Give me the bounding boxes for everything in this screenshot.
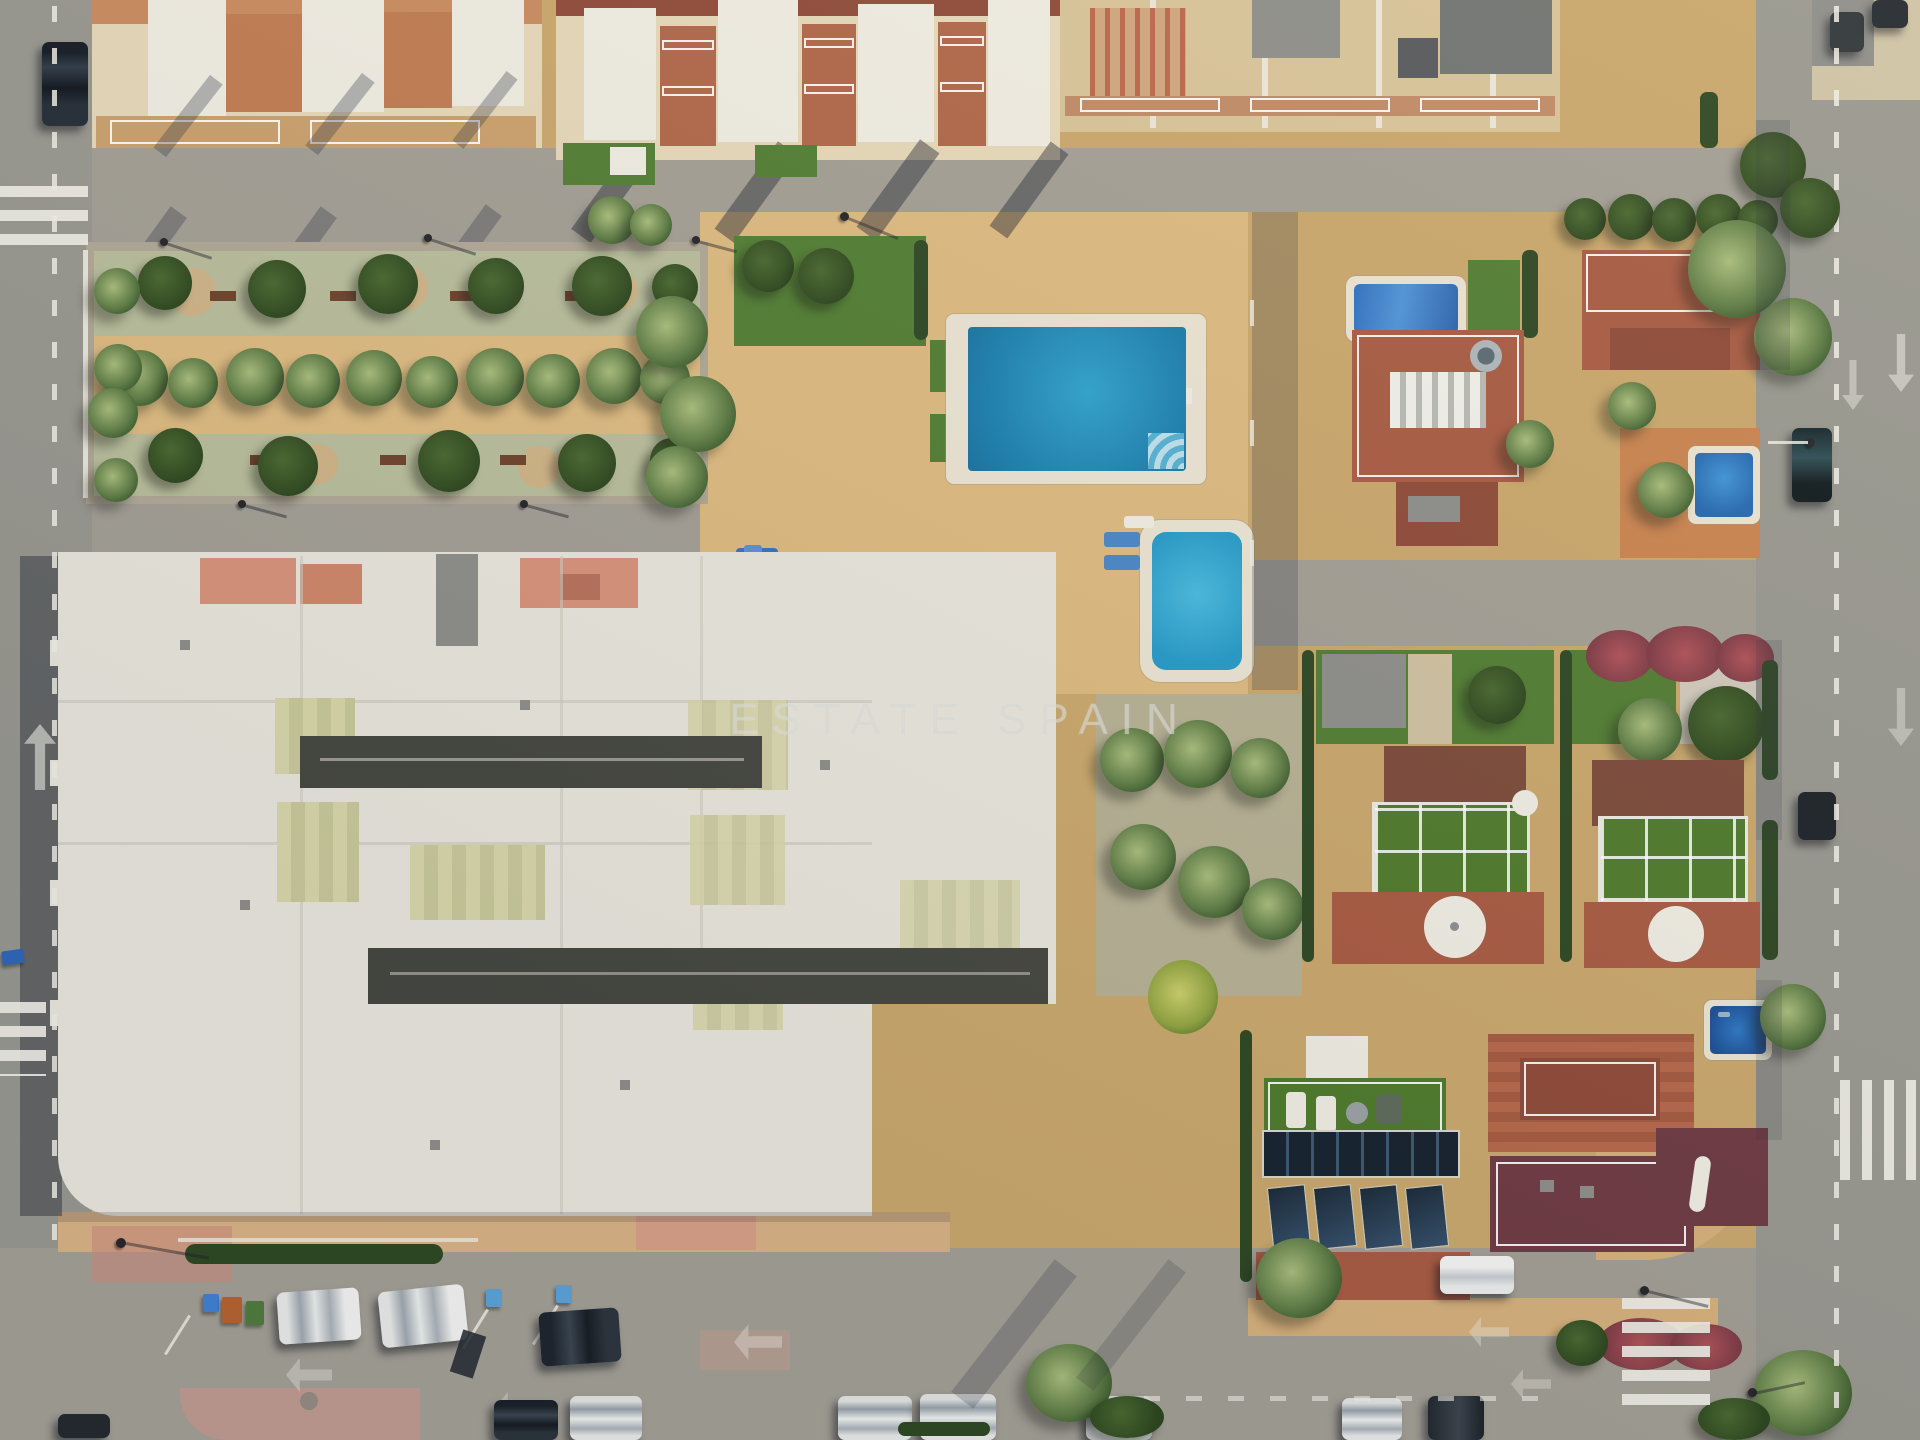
- watermark-text: ESTATE SPAIN: [720, 692, 1200, 748]
- aerial-photograph: ESTATE SPAIN: [0, 0, 1920, 1440]
